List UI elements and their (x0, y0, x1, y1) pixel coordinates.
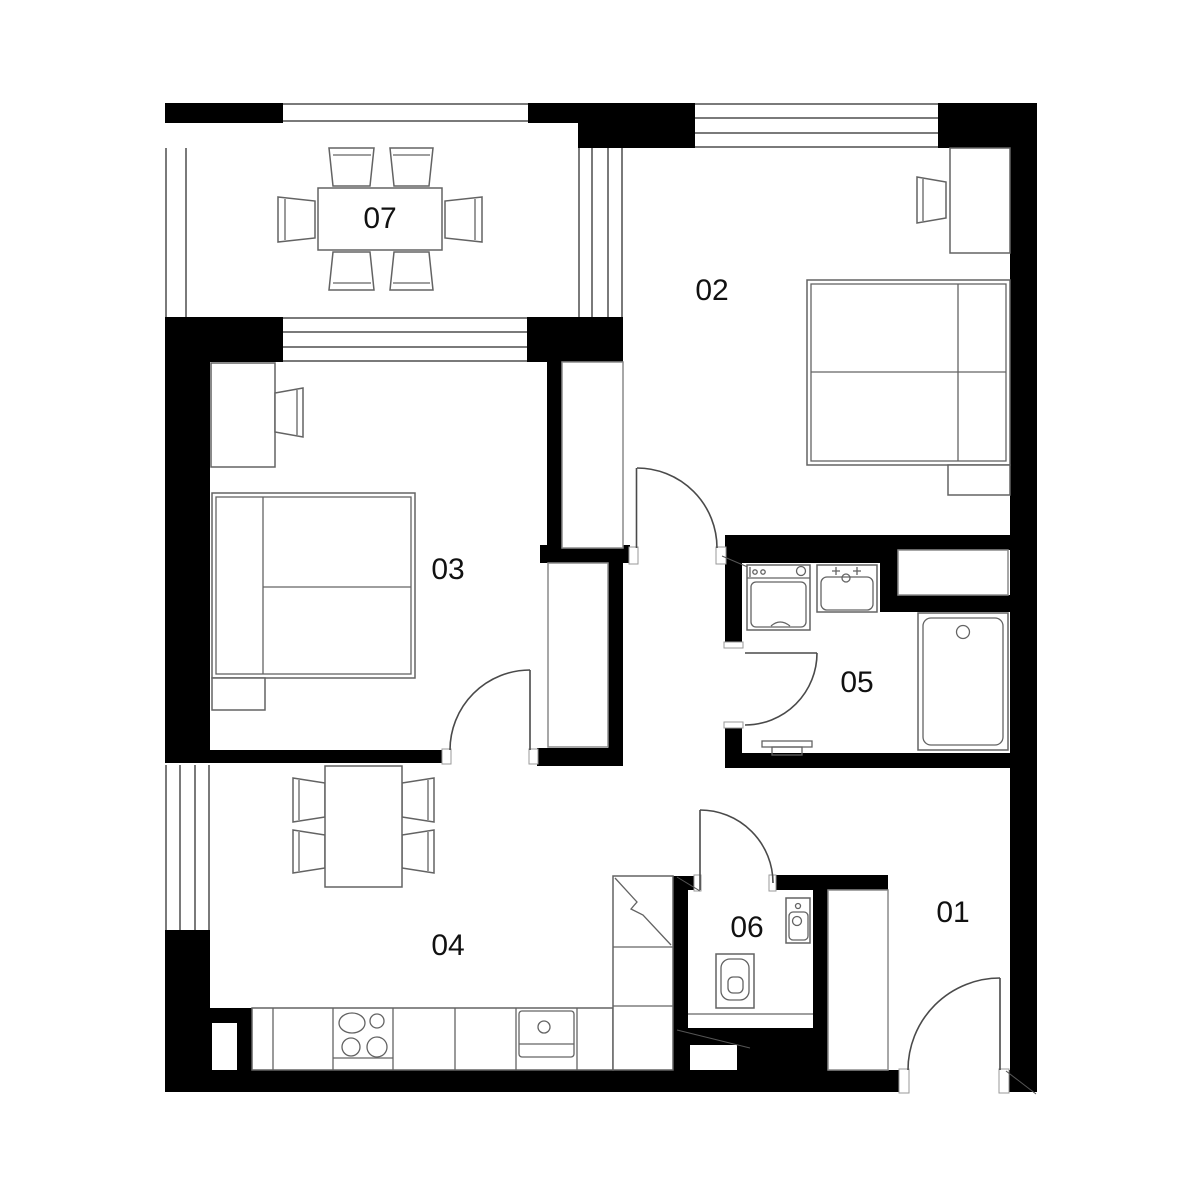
washing-machine-icon (747, 565, 810, 630)
closet-hall-01 (828, 890, 888, 1070)
bathroom-sink-icon (817, 565, 877, 612)
desk-chair-icon (275, 388, 303, 437)
chair-icon (293, 830, 325, 873)
dining-table-icon (325, 766, 402, 887)
desk-icon (211, 363, 275, 467)
room-label-01: 01 (936, 896, 969, 929)
closet-bedroom-02 (562, 362, 623, 548)
kitchen-counter (252, 1008, 613, 1070)
room-label-02: 02 (695, 274, 728, 307)
desk-chair-icon (917, 177, 946, 223)
chair-icon (390, 148, 433, 186)
room-label-07: 07 (363, 202, 396, 235)
chair-icon (293, 778, 325, 822)
washbasin-icon (786, 898, 810, 943)
room-label-05: 05 (840, 666, 873, 699)
chair-icon (329, 148, 374, 186)
wardrobe-icon (613, 876, 673, 1070)
closet-bedroom-03 (548, 563, 608, 747)
room-label-04: 04 (431, 929, 464, 962)
desk-icon (950, 148, 1010, 253)
corner-shaft (212, 1023, 237, 1070)
nightstand-icon (948, 465, 1010, 495)
chair-icon (445, 197, 482, 242)
nightstand-icon (212, 678, 265, 710)
toilet-icon (716, 954, 754, 1008)
wc-bottom-notch (690, 1045, 737, 1070)
chair-icon (278, 197, 315, 242)
chair-icon (390, 252, 433, 290)
shower-tray-icon (918, 613, 1008, 750)
chair-icon (402, 830, 434, 873)
double-bed-icon (807, 280, 1010, 465)
chair-icon (329, 252, 374, 290)
chair-icon (402, 778, 434, 822)
floor-plan: 01 02 03 04 05 06 07 (0, 0, 1200, 1200)
double-bed-icon (212, 493, 415, 678)
bathroom-niche (898, 550, 1008, 595)
floor-plan-page: 01 02 03 04 05 06 07 (0, 0, 1200, 1200)
room-label-06: 06 (730, 911, 763, 944)
room-label-03: 03 (431, 553, 464, 586)
